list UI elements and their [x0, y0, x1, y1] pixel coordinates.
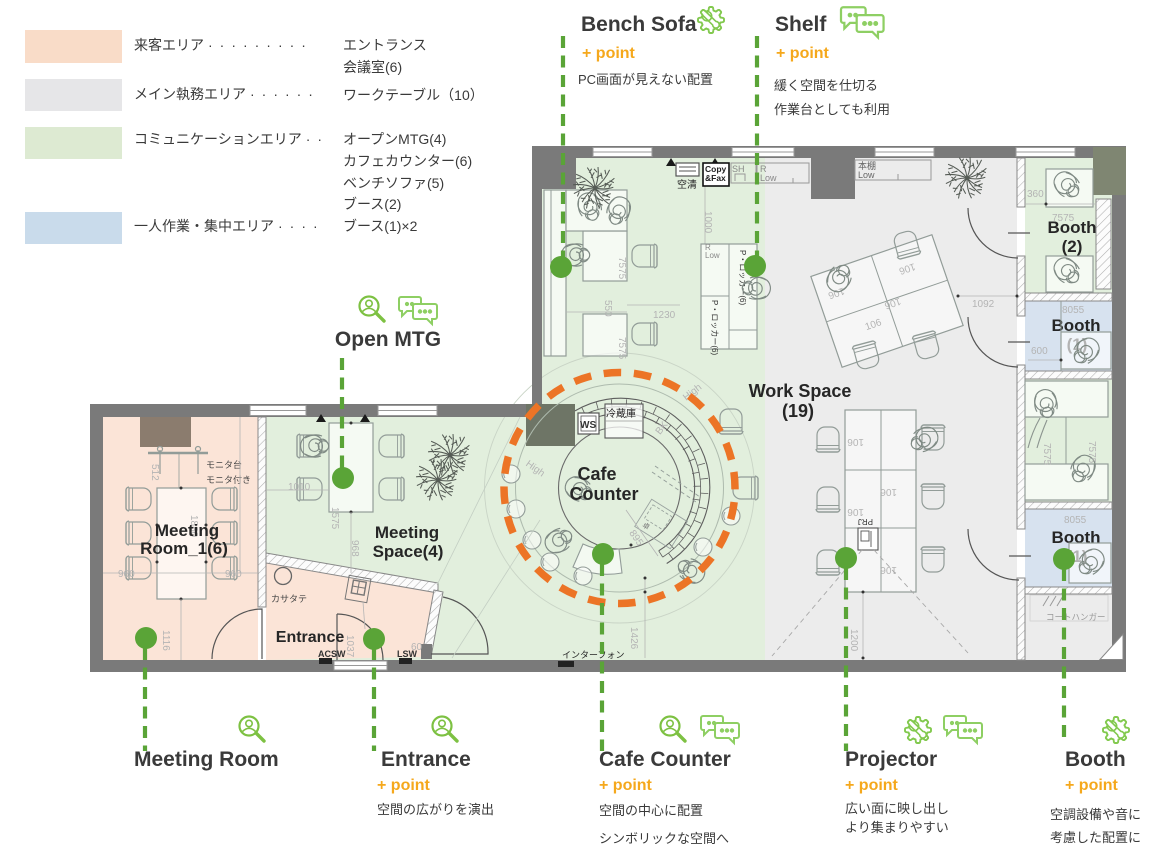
svg-text:モニタ台: モニタ台: [206, 459, 242, 470]
svg-text:7575: 7575: [616, 337, 627, 360]
svg-text:7575: 7575: [1052, 213, 1075, 224]
svg-text:8055: 8055: [1064, 515, 1087, 526]
svg-text:Shelf: Shelf: [775, 13, 827, 36]
svg-text:512: 512: [149, 464, 160, 481]
svg-text:ベンチソファ(5): ベンチソファ(5): [343, 175, 444, 191]
svg-text:Entrance: Entrance: [381, 748, 471, 771]
svg-text:1200: 1200: [848, 629, 859, 652]
svg-text:+ point: + point: [1065, 777, 1119, 794]
svg-text:Bench Sofa: Bench Sofa: [581, 13, 697, 36]
svg-text:968: 968: [349, 540, 360, 557]
svg-text:550: 550: [602, 300, 613, 317]
svg-text:広い面に映し出し: 広い面に映し出し: [845, 801, 949, 816]
svg-text:8055: 8055: [1062, 305, 1085, 316]
svg-text:7575: 7575: [1041, 443, 1052, 466]
svg-text:(19): (19): [782, 401, 814, 421]
svg-text:空清: 空清: [677, 178, 697, 191]
svg-text:Space(4): Space(4): [373, 542, 444, 561]
svg-text:コミュニケーションエリア··: コミュニケーションエリア··: [134, 131, 329, 147]
svg-text:一人作業・集中エリア····: 一人作業・集中エリア····: [134, 218, 325, 234]
svg-text:空間の広がりを演出: 空間の広がりを演出: [377, 802, 494, 817]
svg-text:緩く空間を仕切る: 緩く空間を仕切る: [774, 78, 878, 93]
svg-text:P・ロッカー(6): P・ロッカー(6): [710, 300, 719, 355]
svg-text:ブース(2): ブース(2): [343, 196, 401, 212]
svg-text:60: 60: [411, 642, 423, 653]
svg-text:360: 360: [1027, 189, 1044, 200]
svg-text:Counter: Counter: [570, 484, 639, 504]
svg-text:Meeting Room: Meeting Room: [134, 748, 279, 771]
svg-text:メイン執務エリア······: メイン執務エリア······: [134, 86, 320, 102]
svg-text:Open MTG: Open MTG: [335, 328, 441, 351]
svg-text:シンボリックな空間へ: シンボリックな空間へ: [599, 831, 729, 846]
svg-text:SH: SH: [732, 164, 745, 174]
svg-text:106: 106: [847, 436, 864, 447]
svg-text:コートハンガー: コートハンガー: [1046, 612, 1106, 622]
svg-text:(2): (2): [1062, 237, 1083, 256]
svg-text:1092: 1092: [972, 299, 995, 310]
svg-text:1426: 1426: [628, 627, 639, 650]
svg-text:1575: 1575: [329, 507, 340, 530]
svg-text:&Fax: &Fax: [705, 173, 726, 183]
svg-text:エントランス: エントランス: [343, 37, 427, 53]
svg-text:オープンMTG(4): オープンMTG(4): [343, 131, 446, 147]
svg-text:Work Space: Work Space: [749, 381, 852, 401]
svg-text:冷蔵庫: 冷蔵庫: [606, 407, 636, 420]
svg-text:Low: Low: [705, 251, 720, 260]
svg-text:1230: 1230: [653, 310, 676, 321]
svg-text:Cafe Counter: Cafe Counter: [599, 748, 731, 771]
svg-text:1037: 1037: [344, 635, 355, 658]
svg-text:PRJ: PRJ: [858, 517, 873, 526]
svg-text:Room_1(6): Room_1(6): [140, 539, 228, 558]
svg-text:空間の中心に配置: 空間の中心に配置: [599, 803, 703, 818]
svg-text:1010: 1010: [288, 482, 311, 493]
svg-text:Booth: Booth: [1065, 748, 1126, 771]
svg-text:Cafe: Cafe: [577, 464, 616, 484]
svg-text:960: 960: [225, 569, 242, 580]
svg-text:モニタ付き: モニタ付き: [206, 475, 251, 485]
svg-text:960: 960: [118, 569, 135, 580]
svg-text:+ point: + point: [845, 777, 899, 794]
svg-text:会議室(6): 会議室(6): [343, 59, 402, 75]
svg-text:考慮した配置に: 考慮した配置に: [1050, 830, 1141, 845]
svg-text:1116: 1116: [160, 630, 171, 651]
svg-text:+ point: + point: [377, 777, 431, 794]
svg-text:7575: 7575: [1086, 441, 1097, 464]
svg-text:Projector: Projector: [845, 748, 937, 771]
svg-text:Low: Low: [858, 170, 875, 180]
svg-text:より集まりやすい: より集まりやすい: [845, 820, 949, 835]
svg-text:ACSW: ACSW: [318, 649, 346, 659]
svg-text:1000: 1000: [702, 211, 713, 234]
svg-text:WS: WS: [580, 420, 596, 431]
svg-text:カサタテ: カサタテ: [271, 594, 307, 604]
svg-text:Meeting: Meeting: [375, 523, 439, 542]
svg-text:Entrance: Entrance: [276, 629, 345, 646]
svg-text:106: 106: [880, 486, 897, 497]
svg-text:+ point: + point: [776, 45, 830, 62]
svg-text:空調設備や音に: 空調設備や音に: [1050, 807, 1141, 822]
svg-text:7575: 7575: [616, 257, 627, 280]
svg-text:来客エリア·········: 来客エリア·········: [134, 37, 313, 53]
svg-text:600: 600: [1031, 346, 1048, 357]
svg-text:Low: Low: [760, 173, 777, 183]
svg-text:+ point: + point: [582, 45, 636, 62]
svg-text:ワークテーブル（10）: ワークテーブル（10）: [343, 87, 484, 103]
svg-text:Meeting: Meeting: [155, 521, 219, 540]
svg-text:106: 106: [847, 506, 864, 517]
svg-text:カフェカウンター(6): カフェカウンター(6): [343, 153, 472, 169]
svg-text:PC画面が見えない配置: PC画面が見えない配置: [578, 72, 713, 87]
svg-text:+ point: + point: [599, 777, 653, 794]
svg-text:ブース(1)×2: ブース(1)×2: [343, 218, 418, 234]
svg-text:インターフォン: インターフォン: [562, 650, 624, 660]
svg-text:P・ロッカー(6): P・ロッカー(6): [738, 250, 747, 305]
svg-text:作業台としても利用: 作業台としても利用: [774, 102, 890, 117]
